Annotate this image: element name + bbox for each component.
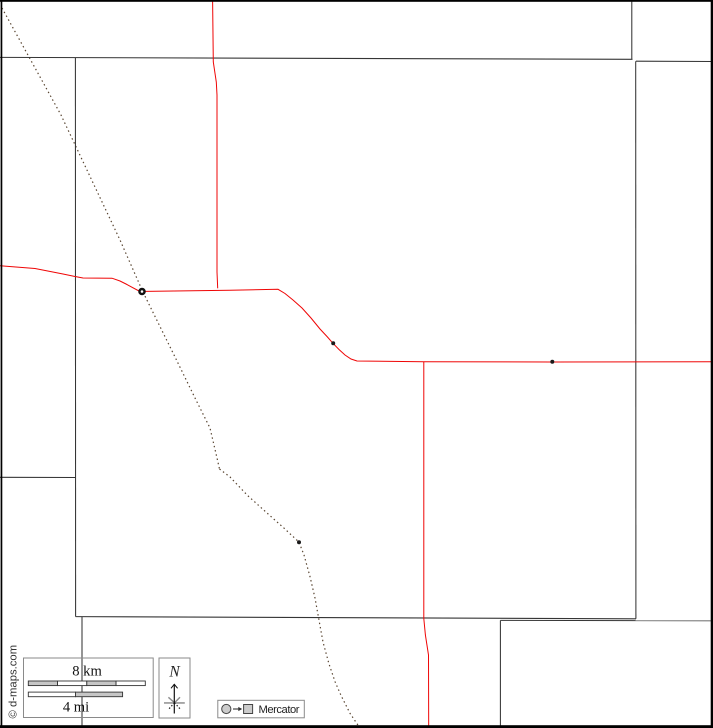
svg-text:N: N bbox=[168, 664, 181, 681]
svg-text:© d-maps.com: © d-maps.com bbox=[8, 645, 20, 719]
svg-text:Mercator: Mercator bbox=[259, 704, 300, 716]
svg-text:4 mi: 4 mi bbox=[63, 700, 89, 716]
svg-text:8 km: 8 km bbox=[72, 664, 102, 680]
